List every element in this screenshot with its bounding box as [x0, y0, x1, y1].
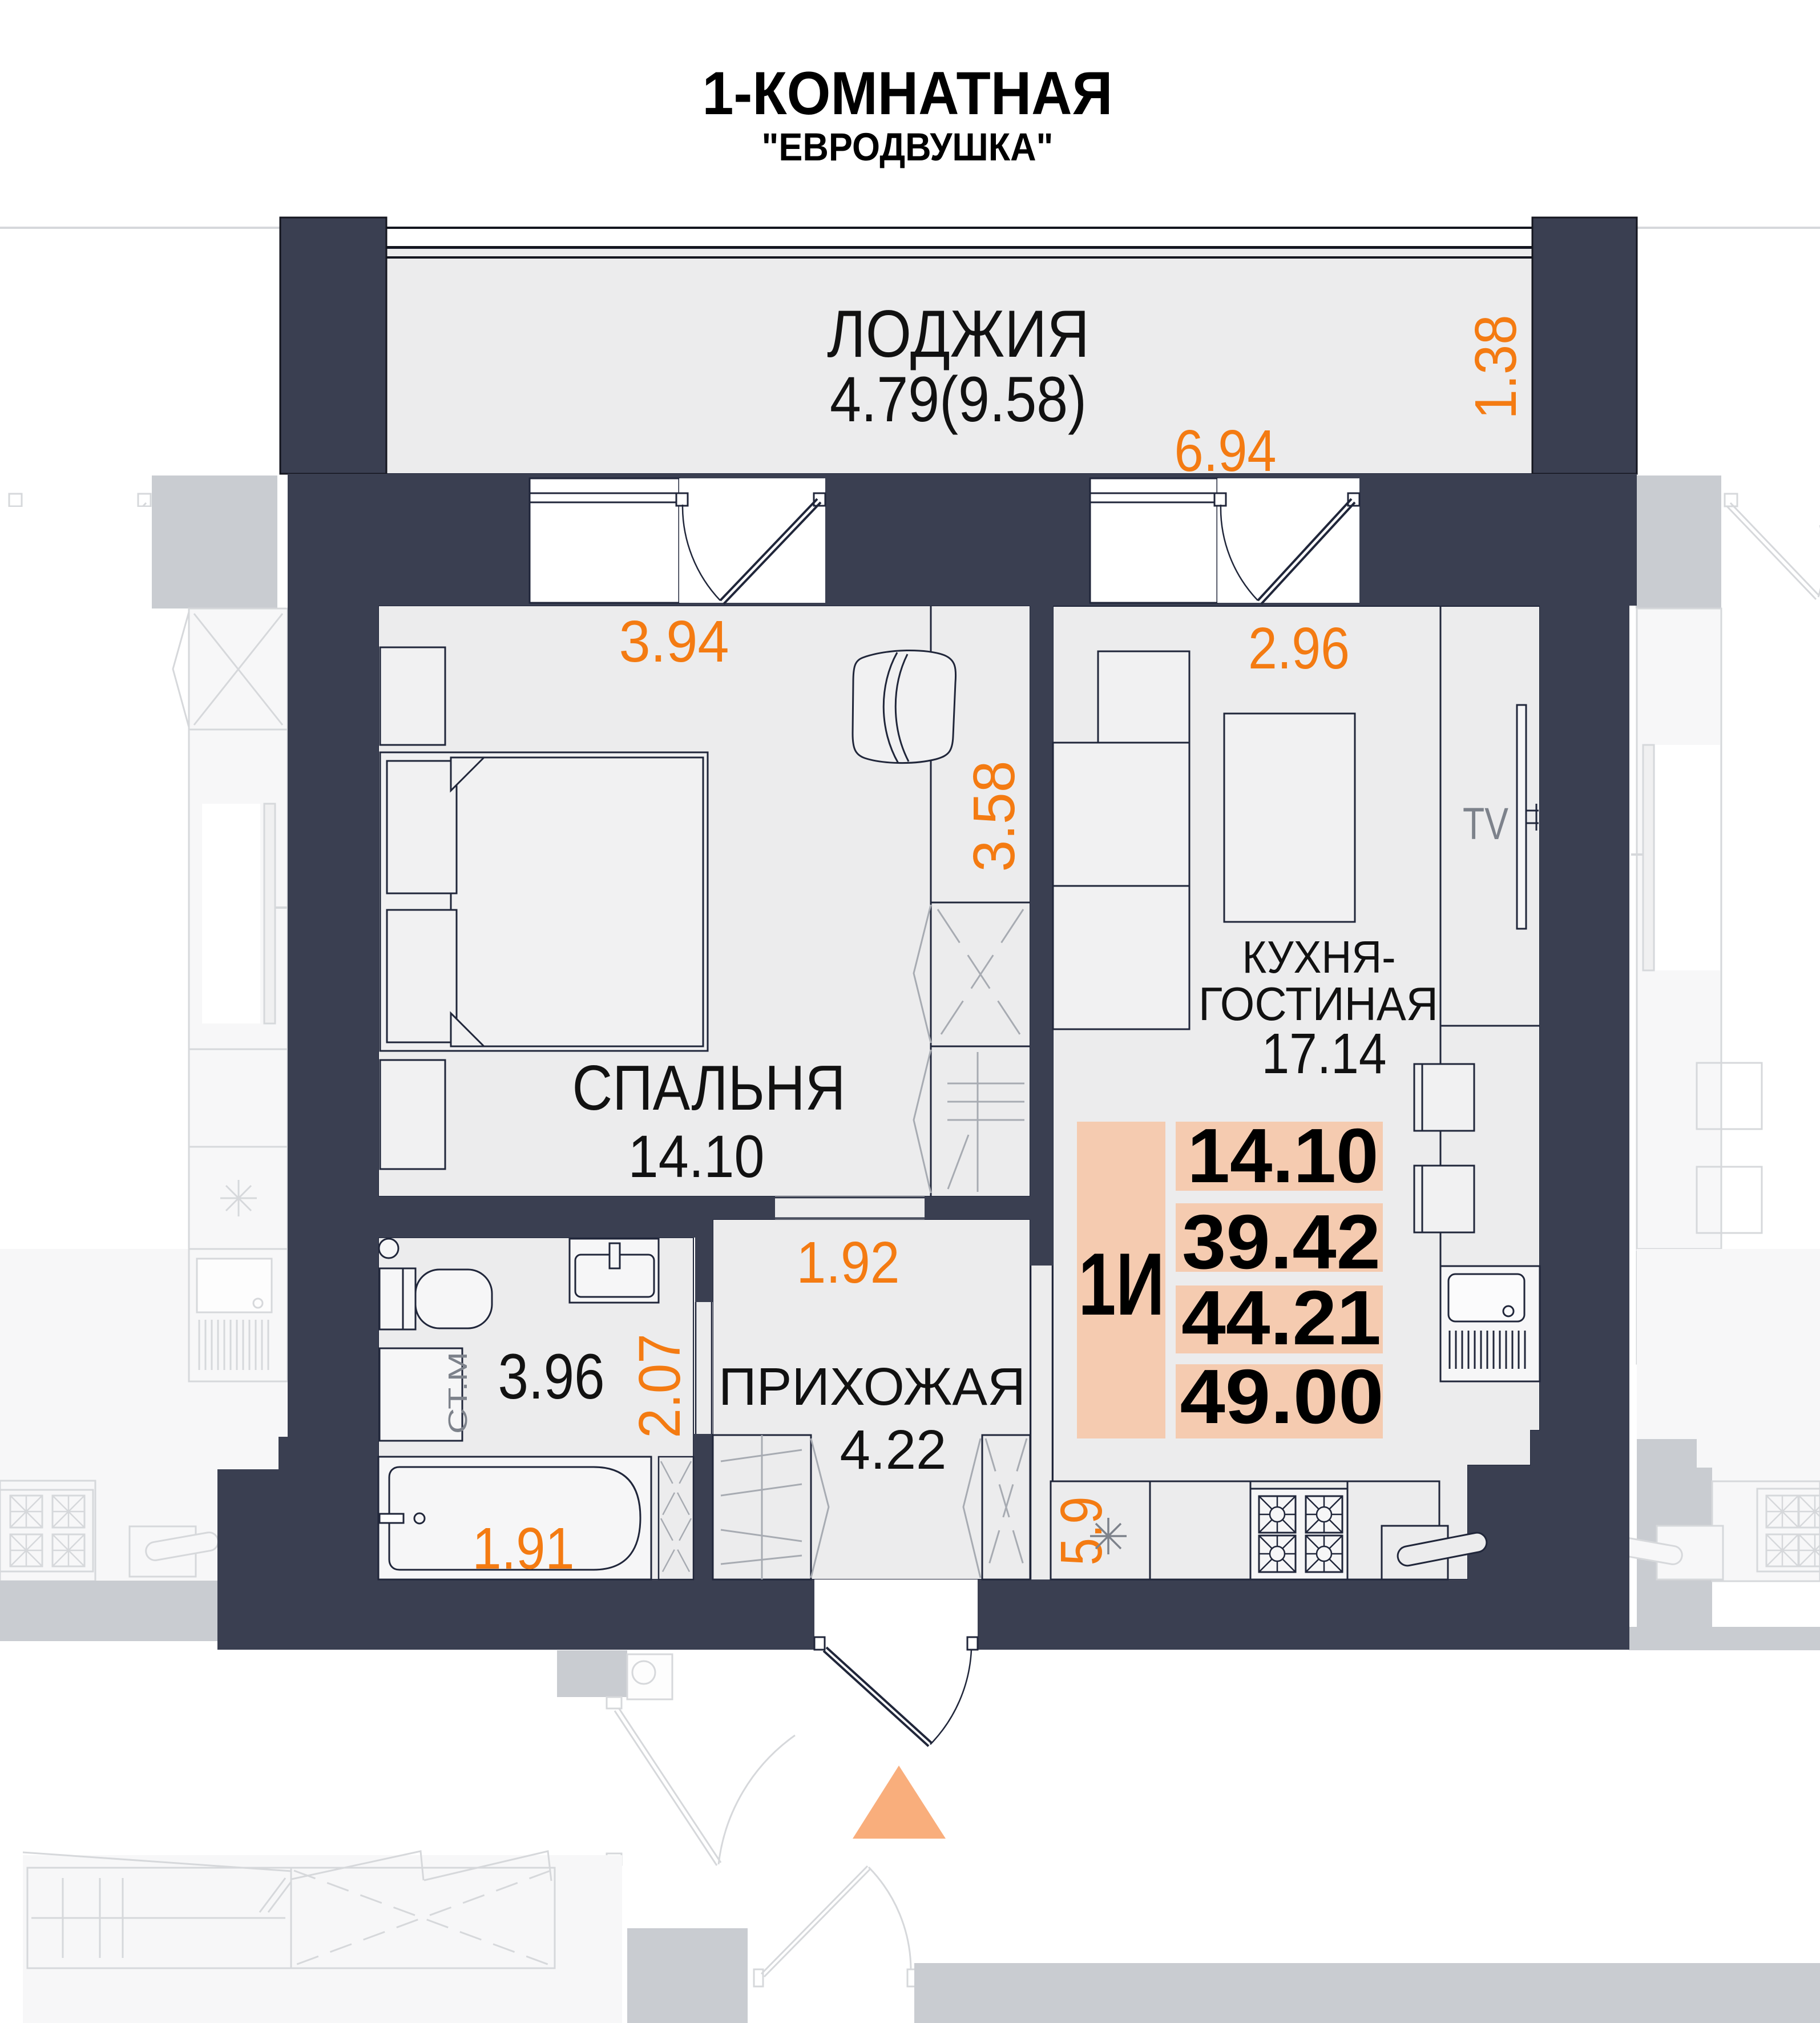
svg-text:ЛОДЖИЯ: ЛОДЖИЯ	[827, 296, 1089, 371]
svg-text:ПРИХОЖАЯ: ПРИХОЖАЯ	[719, 1357, 1026, 1416]
svg-text:3.96: 3.96	[498, 1341, 605, 1412]
svg-text:1-КОМНАТНАЯ: 1-КОМНАТНАЯ	[703, 59, 1113, 127]
svg-text:14.10: 14.10	[1188, 1113, 1379, 1199]
svg-text:17.14: 17.14	[1262, 1022, 1387, 1086]
svg-text:КУХНЯ-: КУХНЯ-	[1242, 932, 1396, 982]
svg-text:49.00: 49.00	[1180, 1353, 1384, 1440]
svg-text:"ЕВРОДВУШКА": "ЕВРОДВУШКА"	[762, 125, 1054, 169]
svg-text:1.38: 1.38	[1463, 315, 1528, 420]
svg-text:2.96: 2.96	[1248, 615, 1350, 681]
svg-text:1И: 1И	[1079, 1235, 1165, 1333]
svg-text:4.22: 4.22	[840, 1418, 947, 1481]
svg-text:4.79(9.58): 4.79(9.58)	[830, 364, 1087, 435]
svg-text:СПАЛЬНЯ: СПАЛЬНЯ	[572, 1053, 846, 1123]
svg-text:1.91: 1.91	[473, 1516, 575, 1581]
svg-text:3.58: 3.58	[961, 761, 1027, 872]
svg-text:14.10: 14.10	[628, 1123, 765, 1190]
svg-text:2.07: 2.07	[627, 1334, 692, 1438]
svg-text:TV: TV	[1463, 798, 1508, 849]
svg-text:39.42: 39.42	[1182, 1199, 1381, 1285]
svg-text:1.92: 1.92	[797, 1230, 900, 1295]
svg-text:6.94: 6.94	[1175, 418, 1277, 483]
svg-text:3.94: 3.94	[619, 608, 729, 674]
svg-text:СТ.М: СТ.М	[443, 1352, 473, 1434]
svg-text:44.21: 44.21	[1181, 1275, 1381, 1361]
